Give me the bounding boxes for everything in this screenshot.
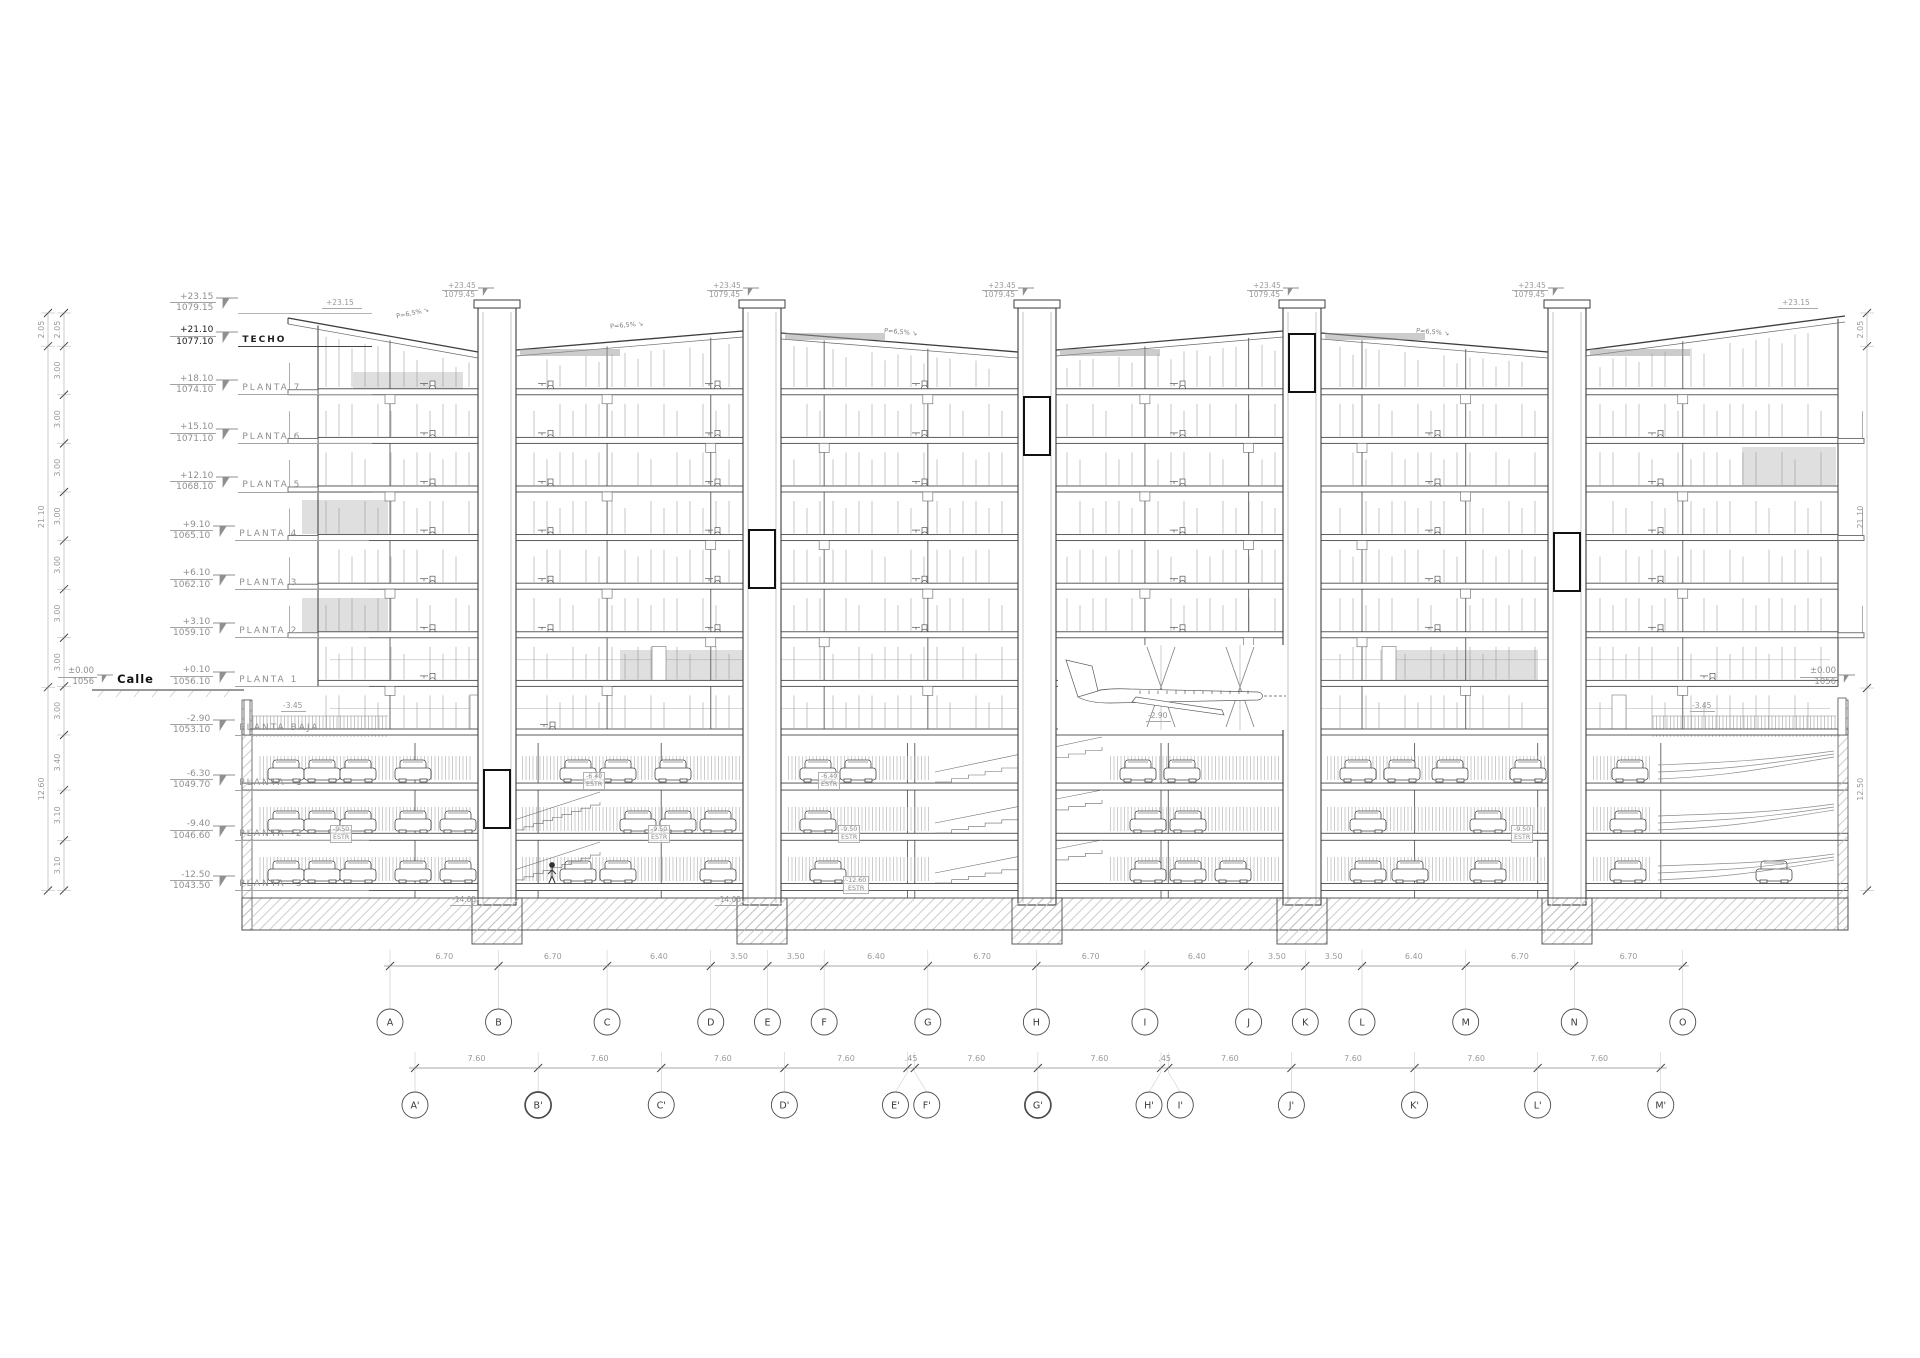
under-roof-glazing xyxy=(1325,333,1425,340)
grid-letter: M xyxy=(1462,1018,1470,1029)
floor-slab xyxy=(318,486,1838,492)
car xyxy=(1510,760,1546,782)
balcony-slab xyxy=(288,438,318,443)
dim-label: 3.10 xyxy=(53,806,62,824)
elevator-cab xyxy=(1289,334,1315,392)
under-roof-glazing xyxy=(785,333,885,340)
grid-dim-label: 6.70 xyxy=(1082,952,1100,961)
car xyxy=(1170,811,1206,833)
car xyxy=(655,760,691,782)
grid-dim-label: 7.60 xyxy=(837,1054,855,1063)
grid-letter: L xyxy=(1359,1018,1365,1029)
grid-letter: I xyxy=(1144,1018,1147,1029)
dim-label: 3.00 xyxy=(53,702,62,720)
door xyxy=(652,646,666,680)
grid-letter: B xyxy=(495,1018,502,1029)
dim-label: 3.00 xyxy=(53,653,62,671)
grid-dim-label: 7.60 xyxy=(1344,1054,1362,1063)
door xyxy=(1382,646,1396,680)
grid-letter: H xyxy=(1033,1018,1040,1029)
car xyxy=(1350,861,1386,883)
grid-dim-label: 6.70 xyxy=(1511,952,1529,961)
grid-dim-label: 6.70 xyxy=(1620,952,1638,961)
grid-dim-label: 6.70 xyxy=(544,952,562,961)
core-roof-cap xyxy=(474,300,520,308)
grid-letter: J' xyxy=(1288,1101,1294,1112)
elevator-core xyxy=(1283,308,1321,905)
grid-dim-label: 3.50 xyxy=(730,952,748,961)
balcony-slab xyxy=(288,390,318,395)
parking-ramp-curve xyxy=(1658,860,1834,880)
car xyxy=(395,861,431,883)
grid-dim-label: 7.60 xyxy=(1221,1054,1239,1063)
balcony-slab xyxy=(1838,633,1864,638)
car xyxy=(1350,811,1386,833)
grid-dim-label: 7.60 xyxy=(967,1054,985,1063)
car xyxy=(1470,811,1506,833)
core-roof-cap xyxy=(1279,300,1325,308)
car xyxy=(810,861,846,883)
car xyxy=(1756,861,1792,883)
grid-letter: E' xyxy=(891,1101,900,1112)
dim-label: 3.10 xyxy=(53,856,62,874)
glazing-panel xyxy=(302,598,388,632)
car xyxy=(304,811,340,833)
floor-slab xyxy=(318,583,1838,589)
grid-letter: E xyxy=(764,1018,770,1029)
car xyxy=(440,811,476,833)
car xyxy=(560,760,596,782)
grid-letter: I' xyxy=(1178,1101,1183,1112)
balcony-slab xyxy=(288,487,318,492)
car xyxy=(800,760,836,782)
grid-dim-label: 7.60 xyxy=(714,1054,732,1063)
dim-label: 3.00 xyxy=(53,459,62,477)
grid-dim-label: .45 xyxy=(905,1054,918,1063)
grid-letter: M' xyxy=(1655,1101,1666,1112)
car xyxy=(660,811,696,833)
grid-dim-label: 6.40 xyxy=(1405,952,1423,961)
under-roof-glazing xyxy=(1590,349,1690,356)
under-roof-glazing xyxy=(1060,349,1160,356)
grid-letter: N xyxy=(1571,1018,1578,1029)
elevator-pit xyxy=(1542,898,1592,944)
car xyxy=(340,760,376,782)
car xyxy=(1392,861,1428,883)
grid-letter: F' xyxy=(923,1101,931,1112)
grid-letter: H' xyxy=(1144,1101,1154,1112)
elevator-cab xyxy=(1554,533,1580,591)
car xyxy=(600,861,636,883)
grid-letter: D' xyxy=(779,1101,789,1112)
core-roof-cap xyxy=(1544,300,1590,308)
parking-rail-hatch xyxy=(788,857,930,881)
elevator-cab xyxy=(749,530,775,588)
dim-label: 12.50 xyxy=(1856,778,1865,801)
grid-letter: C' xyxy=(657,1101,666,1112)
elevator-pit xyxy=(737,898,787,944)
grid-dim-label: 6.70 xyxy=(435,952,453,961)
core-roof-cap xyxy=(739,300,785,308)
grid-letter: A xyxy=(387,1018,394,1029)
car xyxy=(1610,861,1646,883)
grid-dim-label: 7.60 xyxy=(591,1054,609,1063)
glazing-panel xyxy=(302,500,388,534)
dim-label: 12.60 xyxy=(37,777,46,800)
elevator-pit xyxy=(1277,898,1327,944)
dim-label: 3.00 xyxy=(53,410,62,428)
floor-slab xyxy=(318,437,1838,443)
car xyxy=(304,861,340,883)
dim-label: 2.05 xyxy=(1856,321,1865,339)
grid-dim-label: 6.70 xyxy=(973,952,991,961)
core-roof-cap xyxy=(1014,300,1060,308)
grid-row-secondary: A'B'C'D'E'F'G'H'I'J'K'L'M'7.607.607.607.… xyxy=(402,1052,1674,1118)
dim-label: 3.00 xyxy=(53,556,62,574)
car xyxy=(800,811,836,833)
grid-dim-label: 3.50 xyxy=(1268,952,1286,961)
elevator-pit xyxy=(472,898,522,944)
grid-letter: C xyxy=(604,1018,611,1029)
balcony-slab xyxy=(288,536,318,541)
grid-letter: K xyxy=(1302,1018,1309,1029)
car xyxy=(1130,811,1166,833)
under-roof-glazing xyxy=(520,349,620,356)
car xyxy=(304,760,340,782)
car xyxy=(1215,861,1251,883)
elevator-pit xyxy=(1012,898,1062,944)
grid-letter: A' xyxy=(410,1101,419,1112)
balcony-slab xyxy=(288,633,318,638)
dim-label: 3.40 xyxy=(53,754,62,772)
grid-letter: L' xyxy=(1534,1101,1542,1112)
floor-slab xyxy=(318,535,1838,541)
car xyxy=(1340,760,1376,782)
car xyxy=(700,861,736,883)
grid-dim-label: 6.40 xyxy=(650,952,668,961)
elevator-cab xyxy=(1024,397,1050,455)
balcony-slab xyxy=(288,584,318,589)
car xyxy=(440,861,476,883)
parking-ramp-curve xyxy=(1658,810,1834,830)
car xyxy=(700,811,736,833)
dim-label: 21.10 xyxy=(37,505,46,528)
terrace-parapet-right xyxy=(1838,698,1846,735)
roofline xyxy=(288,316,1845,352)
car xyxy=(395,811,431,833)
car xyxy=(268,760,304,782)
grid-dim-label: 3.50 xyxy=(787,952,805,961)
car xyxy=(840,760,876,782)
grid-dim-label: 7.60 xyxy=(1590,1054,1608,1063)
glazing-panel xyxy=(1380,650,1538,681)
floor-slab xyxy=(318,389,1838,395)
car xyxy=(1164,760,1200,782)
dim-chain-right: 2.0521.1012.50 xyxy=(1856,309,1874,895)
dim-label: 21.10 xyxy=(1856,506,1865,529)
balcony-slab xyxy=(1838,536,1864,541)
car xyxy=(1120,760,1156,782)
car xyxy=(1130,861,1166,883)
grid-dim-label: 6.40 xyxy=(1188,952,1206,961)
grid-dim-label: 7.60 xyxy=(1467,1054,1485,1063)
parking-ramp-curve xyxy=(1658,754,1834,772)
grid-letter: B' xyxy=(534,1101,543,1112)
grid-letter: G xyxy=(924,1018,931,1029)
grid-dim-label: 6.40 xyxy=(867,952,885,961)
terrace-parapet-left xyxy=(244,700,250,735)
floor-slab xyxy=(318,632,1838,638)
door xyxy=(1612,695,1626,729)
grid-letter: O xyxy=(1679,1018,1686,1029)
car xyxy=(1612,760,1648,782)
dim-label: 3.00 xyxy=(53,605,62,623)
car xyxy=(1384,760,1420,782)
grid-letter: F xyxy=(821,1018,826,1029)
grid-letter: G' xyxy=(1033,1101,1043,1112)
section-drawing-sheet: 2.0521.1012.602.053.003.003.003.003.003.… xyxy=(0,0,1920,1358)
grid-letter: K' xyxy=(1410,1101,1419,1112)
dim-label: 3.00 xyxy=(53,507,62,525)
car xyxy=(1170,861,1206,883)
dim-label: 2.05 xyxy=(37,321,46,339)
grid-letter: J xyxy=(1246,1018,1250,1029)
dim-label: 3.00 xyxy=(53,362,62,380)
elevator-cab xyxy=(484,770,510,828)
elevator-core xyxy=(1548,308,1586,905)
building-section-svg: 2.0521.1012.602.053.003.003.003.003.003.… xyxy=(0,0,1920,1358)
car xyxy=(1610,811,1646,833)
car xyxy=(395,760,431,782)
car xyxy=(340,861,376,883)
dim-chain-left-inner: 2.053.003.003.003.003.003.003.003.003.40… xyxy=(53,309,71,895)
grid-dim-label: 7.60 xyxy=(1091,1054,1109,1063)
car xyxy=(1470,861,1506,883)
elevator-core xyxy=(743,308,781,905)
dim-label: 2.05 xyxy=(53,321,62,339)
car xyxy=(340,811,376,833)
balcony-slab xyxy=(1838,438,1864,443)
grid-dim-label: 7.60 xyxy=(468,1054,486,1063)
car xyxy=(268,811,304,833)
car xyxy=(1432,760,1468,782)
grid-letter: D xyxy=(707,1018,714,1029)
car xyxy=(268,861,304,883)
glazing-panel xyxy=(353,372,463,390)
grid-dim-label: .45 xyxy=(1158,1054,1171,1063)
car xyxy=(620,811,656,833)
car xyxy=(600,760,636,782)
grid-dim-label: 3.50 xyxy=(1325,952,1343,961)
grid-row-primary: ABCDEFGHIJKLMNO6.706.706.403.503.506.406… xyxy=(377,950,1696,1035)
